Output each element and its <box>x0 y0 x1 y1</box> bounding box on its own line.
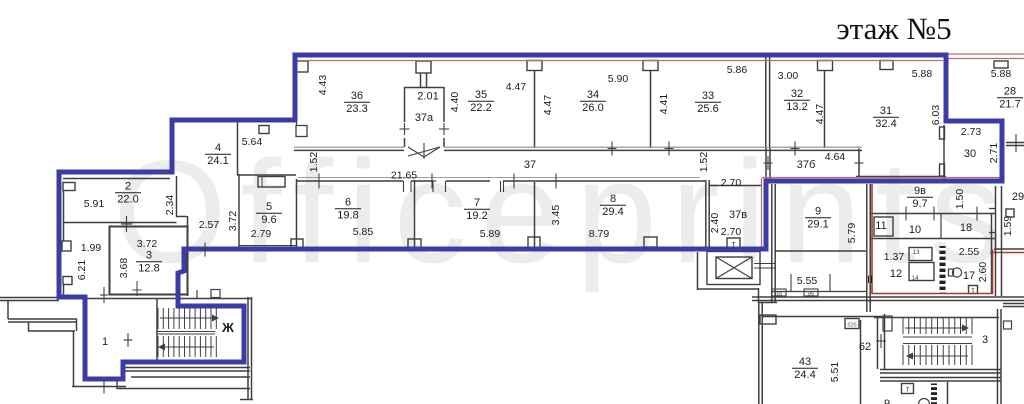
svg-text:32: 32 <box>791 88 803 100</box>
svg-text:9в: 9в <box>914 185 926 197</box>
svg-text:22.0: 22.0 <box>117 194 138 206</box>
svg-text:Officeprints: Officeprints <box>113 130 1017 293</box>
svg-text:14: 14 <box>911 275 919 282</box>
svg-text:4.40: 4.40 <box>449 92 461 113</box>
svg-text:19.2: 19.2 <box>466 210 487 222</box>
svg-text:29.1: 29.1 <box>807 219 828 231</box>
svg-text:13: 13 <box>912 249 920 256</box>
svg-text:24.4: 24.4 <box>794 369 815 381</box>
svg-text:30: 30 <box>964 148 976 160</box>
svg-text:II: II <box>867 274 873 286</box>
svg-text:37а: 37а <box>415 112 434 124</box>
svg-text:36: 36 <box>351 90 363 102</box>
svg-text:4.47: 4.47 <box>542 95 554 116</box>
svg-text:5.86: 5.86 <box>727 64 748 76</box>
svg-text:Ж: Ж <box>221 320 234 335</box>
svg-text:2.34: 2.34 <box>164 195 176 216</box>
svg-text:этаж №5: этаж №5 <box>836 11 951 46</box>
svg-text:5.55: 5.55 <box>797 275 818 287</box>
svg-text:21.7: 21.7 <box>999 99 1020 111</box>
svg-text:7: 7 <box>474 197 480 209</box>
svg-text:4.41: 4.41 <box>658 94 670 115</box>
svg-text:2.71: 2.71 <box>988 143 1000 164</box>
svg-text:33: 33 <box>702 90 714 102</box>
svg-text:5.91: 5.91 <box>84 198 105 210</box>
svg-text:21.65: 21.65 <box>391 170 417 182</box>
svg-text:2.55: 2.55 <box>959 246 980 258</box>
svg-text:3: 3 <box>146 250 152 262</box>
svg-text:6.03: 6.03 <box>930 105 942 126</box>
svg-text:12: 12 <box>890 268 902 280</box>
svg-text:25.6: 25.6 <box>697 103 718 115</box>
svg-text:32.4: 32.4 <box>875 118 896 130</box>
svg-text:3.72: 3.72 <box>137 238 158 250</box>
svg-text:8: 8 <box>610 193 616 205</box>
svg-text:2.40: 2.40 <box>709 213 721 234</box>
svg-text:2: 2 <box>125 181 131 193</box>
svg-text:19.8: 19.8 <box>337 210 358 222</box>
svg-text:22.2: 22.2 <box>470 102 491 114</box>
svg-text:2.01: 2.01 <box>417 91 438 103</box>
svg-text:18: 18 <box>960 222 972 234</box>
svg-text:1.52: 1.52 <box>308 152 320 173</box>
svg-text:34: 34 <box>587 89 599 101</box>
svg-text:5.85: 5.85 <box>353 226 374 238</box>
svg-text:24.1: 24.1 <box>207 155 228 167</box>
svg-text:26.0: 26.0 <box>582 102 603 114</box>
svg-text:6.21: 6.21 <box>76 260 88 281</box>
svg-text:9: 9 <box>884 398 890 404</box>
svg-text:3.72: 3.72 <box>227 211 239 232</box>
svg-text:37в: 37в <box>729 209 747 221</box>
svg-text:5.51: 5.51 <box>829 362 841 383</box>
svg-text:5.79: 5.79 <box>846 223 858 244</box>
svg-text:3.00: 3.00 <box>778 70 799 82</box>
svg-text:11: 11 <box>875 220 886 232</box>
svg-text:2.79: 2.79 <box>251 228 272 240</box>
svg-text:4.47: 4.47 <box>506 81 527 93</box>
svg-text:1.99: 1.99 <box>81 242 102 254</box>
svg-text:б2б: б2б <box>847 323 856 329</box>
svg-text:5.90: 5.90 <box>608 73 629 85</box>
svg-text:37б: 37б <box>797 159 816 171</box>
svg-text:1.59: 1.59 <box>1002 216 1014 237</box>
svg-text:2.57: 2.57 <box>199 219 220 231</box>
svg-text:31: 31 <box>880 105 892 117</box>
svg-text:4.43: 4.43 <box>317 75 329 96</box>
svg-text:1: 1 <box>102 336 108 348</box>
svg-text:9.7: 9.7 <box>912 198 927 210</box>
svg-text:29.4: 29.4 <box>602 206 623 218</box>
svg-text:29: 29 <box>1012 191 1024 203</box>
svg-text:5.64: 5.64 <box>242 136 263 148</box>
svg-text:1.52: 1.52 <box>698 152 710 173</box>
svg-text:6: 6 <box>345 197 351 209</box>
svg-text:28: 28 <box>1004 86 1016 98</box>
svg-text:4.64: 4.64 <box>825 151 846 163</box>
svg-text:5: 5 <box>266 201 272 213</box>
svg-text:4.47: 4.47 <box>814 104 826 125</box>
svg-text:37: 37 <box>524 159 536 171</box>
svg-text:3.45: 3.45 <box>550 205 562 226</box>
svg-text:23.3: 23.3 <box>346 103 367 115</box>
svg-text:1.37: 1.37 <box>884 251 905 263</box>
svg-text:3.68: 3.68 <box>118 258 130 279</box>
svg-text:12.8: 12.8 <box>138 263 159 275</box>
svg-text:17: 17 <box>963 270 975 282</box>
svg-text:2.70: 2.70 <box>721 226 742 238</box>
svg-text:2.60: 2.60 <box>977 262 989 283</box>
svg-text:10: 10 <box>909 224 921 236</box>
svg-text:9.6: 9.6 <box>261 214 276 226</box>
svg-text:43: 43 <box>799 356 811 368</box>
svg-text:5.88: 5.88 <box>991 68 1012 80</box>
svg-text:2.73: 2.73 <box>961 126 982 138</box>
svg-text:13.2: 13.2 <box>786 101 807 113</box>
svg-text:2.70: 2.70 <box>721 177 742 189</box>
svg-text:5.88: 5.88 <box>912 68 933 80</box>
svg-text:9: 9 <box>815 206 821 218</box>
svg-text:62: 62 <box>859 341 871 353</box>
svg-text:5.89: 5.89 <box>480 228 501 240</box>
svg-text:8.79: 8.79 <box>589 228 610 240</box>
svg-text:3: 3 <box>982 334 988 346</box>
svg-text:4: 4 <box>215 142 221 154</box>
svg-text:1.50: 1.50 <box>954 189 966 210</box>
svg-text:35: 35 <box>475 89 487 101</box>
